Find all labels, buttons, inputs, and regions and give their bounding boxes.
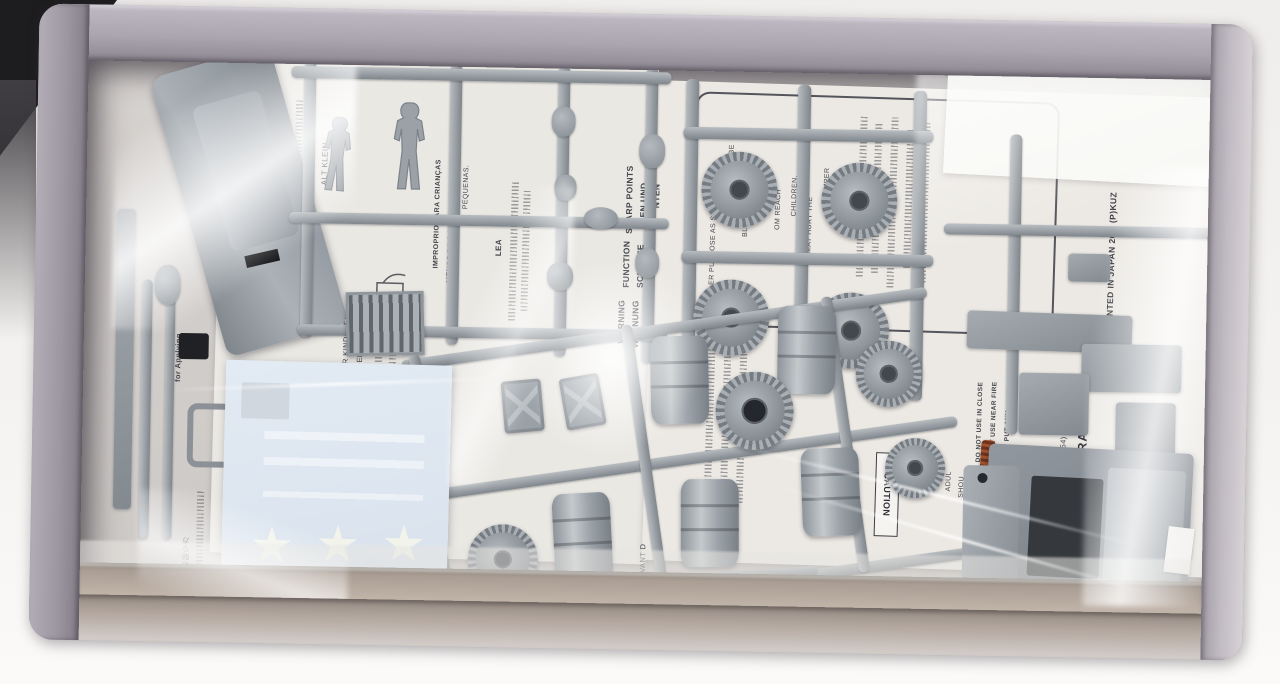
jerry-can-part [500, 378, 544, 433]
tire-hub [849, 191, 869, 211]
gray-part [1081, 344, 1182, 394]
small-part [635, 248, 660, 278]
small-part [639, 134, 666, 168]
warning-pt-line1: IMPRÓPRIO PARA CRIANÇAS [432, 78, 444, 268]
gray-part [1018, 373, 1089, 436]
warning-pt-line3: PEQUENAS. [462, 119, 472, 209]
fuel-drum-part [777, 306, 837, 395]
tow-hook-part [584, 207, 618, 230]
soldier-figure-part [390, 86, 433, 237]
small-part [551, 106, 576, 136]
fine-print-column [520, 191, 530, 311]
small-part [547, 262, 573, 290]
small-part [154, 265, 181, 305]
fine-print-column [508, 181, 519, 321]
box-interior: デカールの貼り方 Move design to exact position w… [77, 58, 1212, 616]
fuel-drum-part [650, 335, 710, 424]
gray-part [1068, 253, 1110, 282]
backdrop-shadow-left [0, 80, 36, 340]
jerry-can-part [558, 373, 606, 431]
photo-model-kit-box-open: デカールの貼り方 Move design to exact position w… [0, 0, 1280, 684]
fuel-drum-part [800, 447, 861, 537]
kit-box: デカールの貼り方 Move design to exact position w… [29, 3, 1254, 660]
decal-faint-markings [262, 431, 424, 525]
tire-hub [729, 180, 749, 200]
decal-logo-mark [241, 382, 290, 419]
tire-part [851, 337, 926, 412]
small-part [554, 174, 576, 200]
